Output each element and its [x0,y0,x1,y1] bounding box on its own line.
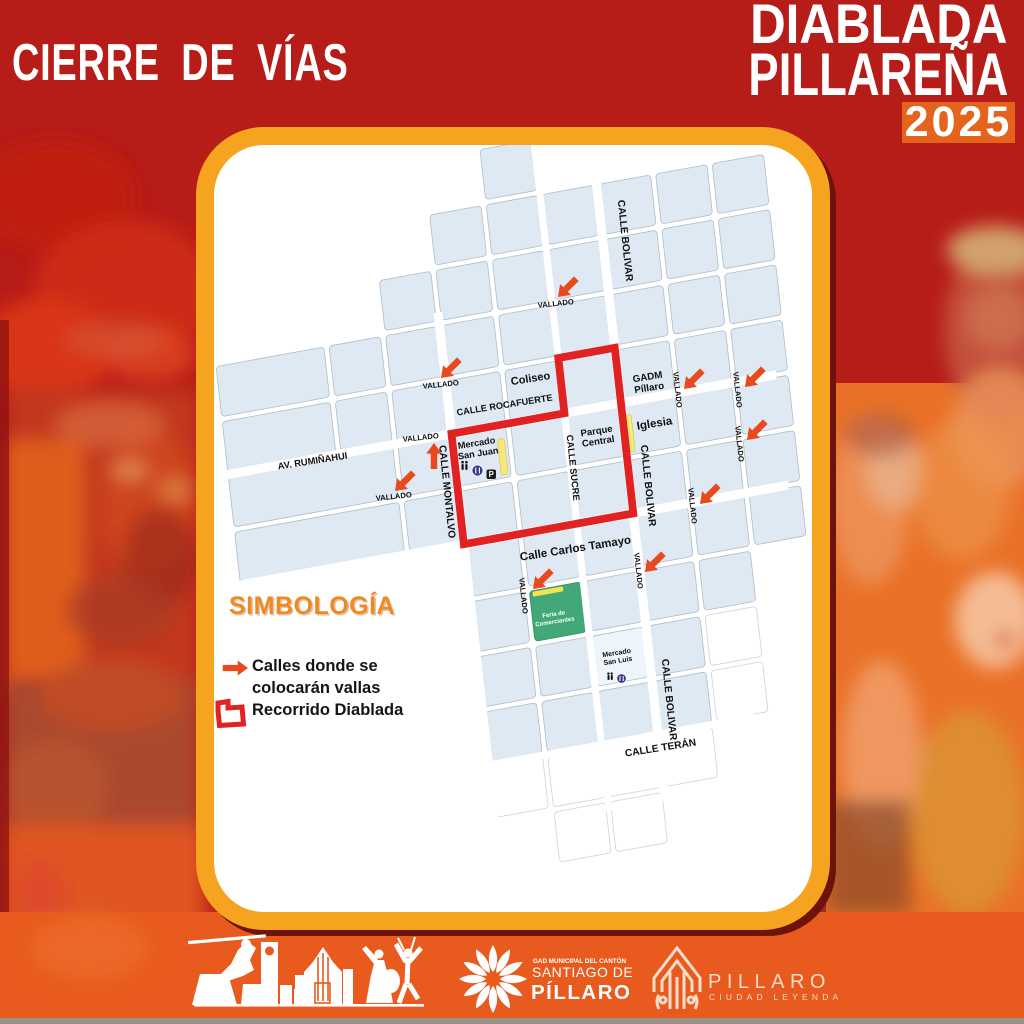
svg-text:SANTIAGO DE: SANTIAGO DE [532,964,633,980]
svg-text:GADMPíllaro: GADMPíllaro [632,370,665,396]
svg-text:PILLARO: PILLARO [708,971,831,993]
svg-text:PÍLLARO: PÍLLARO [531,981,631,1004]
svg-text:CIUDAD LEYENDA: CIUDAD LEYENDA [709,992,842,1002]
svg-text:P: P [489,470,494,479]
